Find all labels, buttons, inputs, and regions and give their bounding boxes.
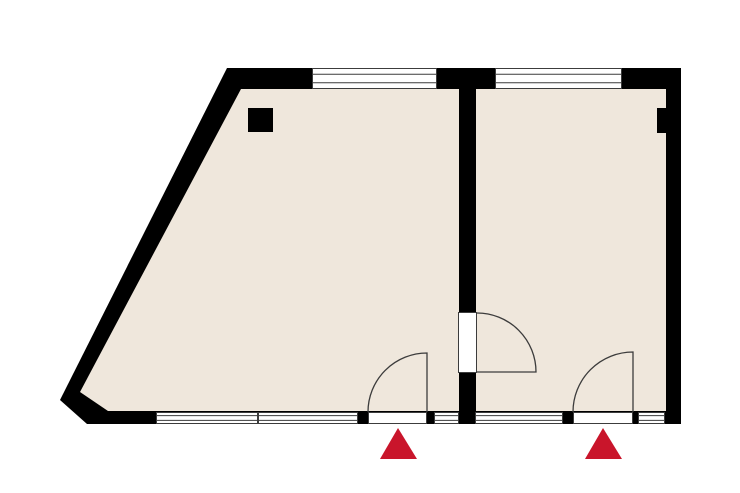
window-top-left: [313, 69, 437, 89]
floor-area: [80, 89, 666, 411]
entrance-marker-left: [380, 428, 417, 459]
floor-plan-svg: [0, 0, 740, 493]
floor-plan: [0, 0, 740, 493]
door-opening-right: [574, 413, 633, 424]
window-bottom-3: [435, 413, 459, 424]
window-top-right: [496, 69, 622, 89]
interior-door-opening: [459, 313, 477, 373]
window-bottom-2: [259, 413, 358, 424]
entrance-marker-right: [585, 428, 622, 459]
door-opening-left: [369, 413, 427, 424]
wall-pier-right: [657, 108, 667, 133]
window-bottom-1: [157, 413, 258, 424]
window-bottom-5: [639, 413, 665, 424]
column-left-room: [248, 108, 273, 132]
window-bottom-4: [476, 413, 563, 424]
